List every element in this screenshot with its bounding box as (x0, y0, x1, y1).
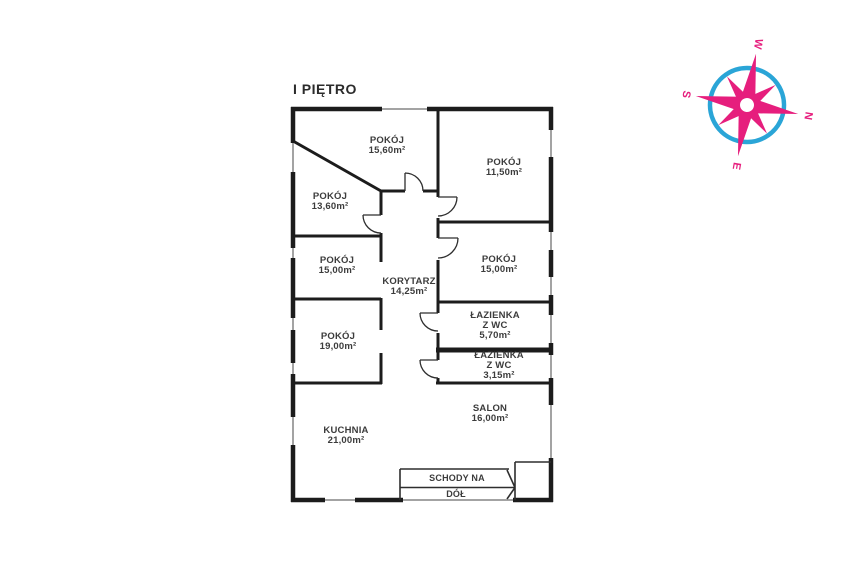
compass-letter-s: S (679, 90, 692, 99)
room-area: 16,00m² (472, 414, 509, 424)
stairs-label-line2: DÓŁ (446, 489, 466, 499)
room-label-pokoj-1150: POKÓJ 11,50m² (486, 158, 522, 178)
floorplan-page: I PIĘTRO POKÓJ 15,60m² POKÓJ 11,50m² POK… (0, 0, 845, 585)
room-label-pokoj-1360: POKÓJ 13,60m² (312, 192, 349, 212)
room-area: 15,60m² (369, 146, 406, 156)
compass-star (687, 45, 807, 165)
room-area: 15,00m² (481, 265, 518, 275)
room-label-pokoj-1900: POKÓJ 19,00m² (320, 332, 357, 352)
room-label-kuchnia: KUCHNIA 21,00m² (323, 426, 368, 446)
room-label-pokoj-1500-left: POKÓJ 15,00m² (319, 256, 356, 276)
room-area: 21,00m² (323, 436, 368, 446)
room-area: 15,00m² (319, 266, 356, 276)
compass-letter-e: E (730, 161, 743, 170)
room-area: 11,50m² (486, 168, 522, 178)
room-label-salon: SALON 16,00m² (472, 404, 509, 424)
compass-rose: N E S W (677, 35, 817, 175)
room-label-lazienka-570: ŁAZIENKA Z WC 5,70m² (470, 311, 520, 341)
room-label-pokoj-1500-right: POKÓJ 15,00m² (481, 255, 518, 275)
compass-rotated-group: N E S W (677, 35, 817, 175)
stairs-label-line1: SCHODY NA (429, 473, 485, 483)
room-label-korytarz: KORYTARZ 14,25m² (382, 277, 435, 297)
compass-letter-w: W (751, 38, 765, 51)
room-label-lazienka-315: ŁAZIENKA Z WC 3,15m² (474, 351, 524, 381)
room-area: 5,70m² (470, 331, 520, 341)
room-area: 14,25m² (382, 287, 435, 297)
room-area: 13,60m² (312, 202, 349, 212)
room-label-pokoj-1560: POKÓJ 15,60m² (369, 136, 406, 156)
room-area: 19,00m² (320, 342, 357, 352)
room-area: 3,15m² (474, 371, 524, 381)
compass-letter-n: N (801, 111, 814, 121)
